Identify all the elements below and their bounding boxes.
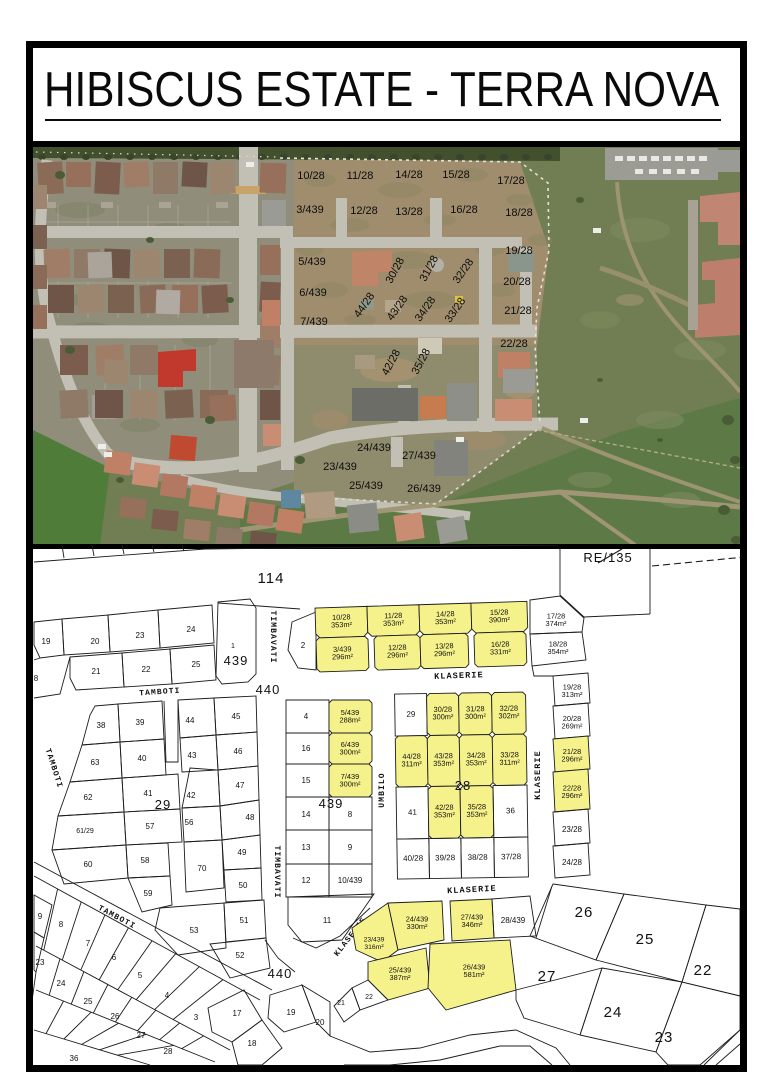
svg-text:26: 26: [575, 904, 594, 921]
svg-text:28/439: 28/439: [501, 916, 526, 925]
svg-text:296m²: 296m²: [562, 755, 583, 764]
svg-text:7: 7: [86, 939, 91, 948]
svg-text:300m²: 300m²: [465, 712, 487, 721]
svg-text:16: 16: [302, 744, 311, 753]
svg-text:41: 41: [408, 808, 418, 817]
svg-text:300m²: 300m²: [340, 748, 361, 757]
svg-text:12/28: 12/28: [350, 205, 378, 217]
svg-text:38/28: 38/28: [468, 853, 489, 862]
svg-text:39: 39: [136, 718, 145, 727]
svg-text:20: 20: [316, 1018, 325, 1027]
svg-text:23: 23: [136, 631, 145, 640]
svg-text:374m²: 374m²: [546, 619, 567, 628]
svg-text:16/28: 16/28: [450, 204, 478, 216]
svg-text:6: 6: [112, 953, 117, 962]
svg-text:61/29: 61/29: [76, 828, 94, 835]
svg-text:24: 24: [57, 979, 66, 988]
svg-text:14/28: 14/28: [395, 169, 423, 181]
svg-text:KLASERIE: KLASERIE: [434, 670, 484, 682]
svg-text:20: 20: [91, 637, 100, 646]
svg-text:56: 56: [185, 818, 194, 827]
svg-text:353m²: 353m²: [435, 617, 457, 627]
svg-text:50: 50: [239, 881, 248, 890]
svg-text:3/439: 3/439: [296, 204, 324, 216]
svg-text:9: 9: [38, 912, 43, 921]
svg-text:353m²: 353m²: [331, 620, 353, 630]
svg-text:296m²: 296m²: [562, 791, 583, 800]
svg-text:24/439: 24/439: [357, 442, 391, 454]
svg-text:UMBILO: UMBILO: [378, 772, 387, 807]
svg-text:45: 45: [232, 712, 241, 721]
svg-text:19: 19: [287, 1008, 296, 1017]
svg-text:13: 13: [302, 843, 311, 852]
svg-text:18: 18: [248, 1039, 257, 1048]
svg-text:36: 36: [506, 806, 516, 815]
svg-text:10/439: 10/439: [338, 876, 363, 885]
svg-text:26/439: 26/439: [407, 483, 441, 495]
svg-text:439: 439: [224, 653, 249, 668]
svg-text:114: 114: [258, 570, 285, 587]
svg-text:TIMBAVATI: TIMBAVATI: [268, 610, 277, 663]
svg-text:27: 27: [538, 968, 557, 985]
svg-text:3: 3: [194, 1013, 199, 1022]
svg-text:353m²: 353m²: [466, 758, 488, 767]
svg-text:4: 4: [304, 712, 309, 721]
svg-text:22: 22: [142, 665, 151, 674]
svg-text:40: 40: [138, 754, 147, 763]
svg-text:8: 8: [34, 674, 39, 683]
svg-text:1: 1: [231, 643, 235, 650]
svg-text:25: 25: [192, 660, 201, 669]
svg-text:5/439: 5/439: [298, 256, 326, 268]
svg-text:43: 43: [188, 751, 197, 760]
svg-text:331m²: 331m²: [490, 647, 512, 657]
svg-text:26: 26: [111, 1012, 120, 1021]
svg-text:21/28: 21/28: [504, 305, 532, 317]
svg-text:52: 52: [236, 951, 245, 960]
svg-text:18/28: 18/28: [505, 207, 533, 219]
svg-text:7/439: 7/439: [300, 316, 328, 328]
svg-text:29: 29: [406, 710, 416, 719]
svg-text:58: 58: [141, 856, 150, 865]
svg-text:21: 21: [337, 1000, 345, 1007]
svg-text:28: 28: [455, 778, 471, 793]
svg-text:10/28: 10/28: [297, 170, 325, 182]
svg-text:25: 25: [636, 931, 655, 948]
svg-text:440: 440: [256, 682, 281, 697]
svg-text:302m²: 302m²: [498, 711, 520, 720]
svg-text:60: 60: [84, 860, 93, 869]
svg-text:354m²: 354m²: [548, 647, 569, 656]
svg-text:TAMBOTI: TAMBOTI: [139, 687, 181, 699]
svg-text:12: 12: [302, 876, 311, 885]
svg-text:2: 2: [301, 641, 306, 650]
svg-text:24: 24: [604, 1004, 623, 1021]
svg-text:37/28: 37/28: [501, 852, 522, 861]
svg-text:300m²: 300m²: [340, 780, 361, 789]
svg-text:59: 59: [144, 889, 153, 898]
svg-text:390m²: 390m²: [489, 615, 511, 625]
svg-text:28: 28: [164, 1047, 173, 1056]
svg-text:44: 44: [186, 716, 195, 725]
svg-text:9: 9: [348, 843, 353, 852]
svg-text:311m²: 311m²: [499, 758, 520, 767]
svg-text:TAMBOTI: TAMBOTI: [43, 748, 64, 790]
svg-text:296m²: 296m²: [434, 649, 456, 659]
svg-text:23/439: 23/439: [364, 937, 385, 944]
svg-text:353m²: 353m²: [434, 810, 456, 819]
svg-text:20/28: 20/28: [503, 276, 531, 288]
svg-text:63: 63: [91, 758, 100, 767]
svg-text:296m²: 296m²: [332, 652, 354, 662]
svg-text:8: 8: [59, 920, 64, 929]
svg-text:13/28: 13/28: [395, 206, 423, 218]
svg-text:269m²: 269m²: [562, 722, 583, 731]
svg-text:313m²: 313m²: [562, 690, 583, 699]
svg-text:330m²: 330m²: [407, 922, 428, 931]
svg-text:29: 29: [155, 797, 171, 812]
svg-text:5: 5: [138, 971, 143, 980]
svg-text:353m²: 353m²: [383, 618, 405, 628]
svg-text:439: 439: [319, 796, 344, 811]
svg-text:288m²: 288m²: [340, 716, 361, 725]
svg-text:57: 57: [146, 822, 155, 831]
svg-text:22: 22: [694, 962, 713, 979]
svg-text:300m²: 300m²: [432, 712, 454, 721]
svg-text:11/28: 11/28: [347, 170, 374, 182]
svg-text:23: 23: [655, 1029, 674, 1046]
svg-text:15/28: 15/28: [442, 169, 470, 181]
svg-text:42: 42: [187, 791, 196, 800]
svg-text:23/439: 23/439: [323, 461, 357, 473]
svg-text:17: 17: [233, 1009, 242, 1018]
svg-text:41: 41: [144, 789, 153, 798]
svg-text:40/28: 40/28: [403, 854, 424, 863]
svg-text:6/439: 6/439: [299, 287, 327, 299]
svg-text:70: 70: [198, 864, 207, 873]
svg-text:47: 47: [236, 781, 245, 790]
svg-text:49: 49: [238, 848, 247, 857]
svg-text:22: 22: [365, 994, 373, 1001]
svg-text:22/28: 22/28: [500, 338, 528, 350]
svg-text:23/28: 23/28: [562, 825, 583, 834]
svg-text:311m²: 311m²: [401, 759, 422, 768]
svg-text:38: 38: [97, 721, 106, 730]
svg-text:19: 19: [42, 637, 51, 646]
svg-text:25: 25: [84, 997, 93, 1006]
svg-text:27/439: 27/439: [402, 450, 436, 462]
svg-text:53: 53: [190, 926, 199, 935]
svg-text:346m²: 346m²: [462, 920, 483, 929]
svg-text:36: 36: [70, 1054, 79, 1063]
svg-text:353m²: 353m²: [466, 810, 488, 819]
svg-text:25/439: 25/439: [349, 480, 383, 492]
svg-text:19/28: 19/28: [505, 245, 533, 257]
svg-text:24/28: 24/28: [562, 858, 583, 867]
svg-text:KLASERIE: KLASERIE: [447, 884, 497, 897]
svg-text:8: 8: [348, 810, 353, 819]
svg-text:15: 15: [302, 776, 311, 785]
svg-text:39/28: 39/28: [435, 853, 456, 862]
svg-text:296m²: 296m²: [387, 650, 409, 660]
svg-text:11: 11: [323, 916, 332, 925]
svg-text:353m²: 353m²: [433, 759, 455, 768]
svg-text:62: 62: [84, 793, 93, 802]
svg-text:387m²: 387m²: [390, 973, 411, 982]
svg-text:51: 51: [240, 916, 249, 925]
svg-text:440: 440: [268, 966, 293, 981]
svg-text:48: 48: [246, 813, 255, 822]
svg-text:14: 14: [302, 810, 311, 819]
svg-text:24: 24: [187, 625, 196, 634]
svg-text:4: 4: [165, 991, 170, 1000]
svg-text:17/28: 17/28: [497, 175, 525, 187]
svg-text:581m²: 581m²: [464, 970, 485, 979]
svg-text:316m²: 316m²: [364, 944, 384, 951]
svg-text:46: 46: [234, 747, 243, 756]
svg-text:KLASERIE: KLASERIE: [533, 750, 543, 800]
svg-text:TAMBOTI: TAMBOTI: [96, 904, 137, 931]
svg-text:23: 23: [36, 958, 45, 967]
svg-text:TIMBAVATI: TIMBAVATI: [272, 845, 281, 898]
svg-text:21: 21: [92, 667, 101, 676]
